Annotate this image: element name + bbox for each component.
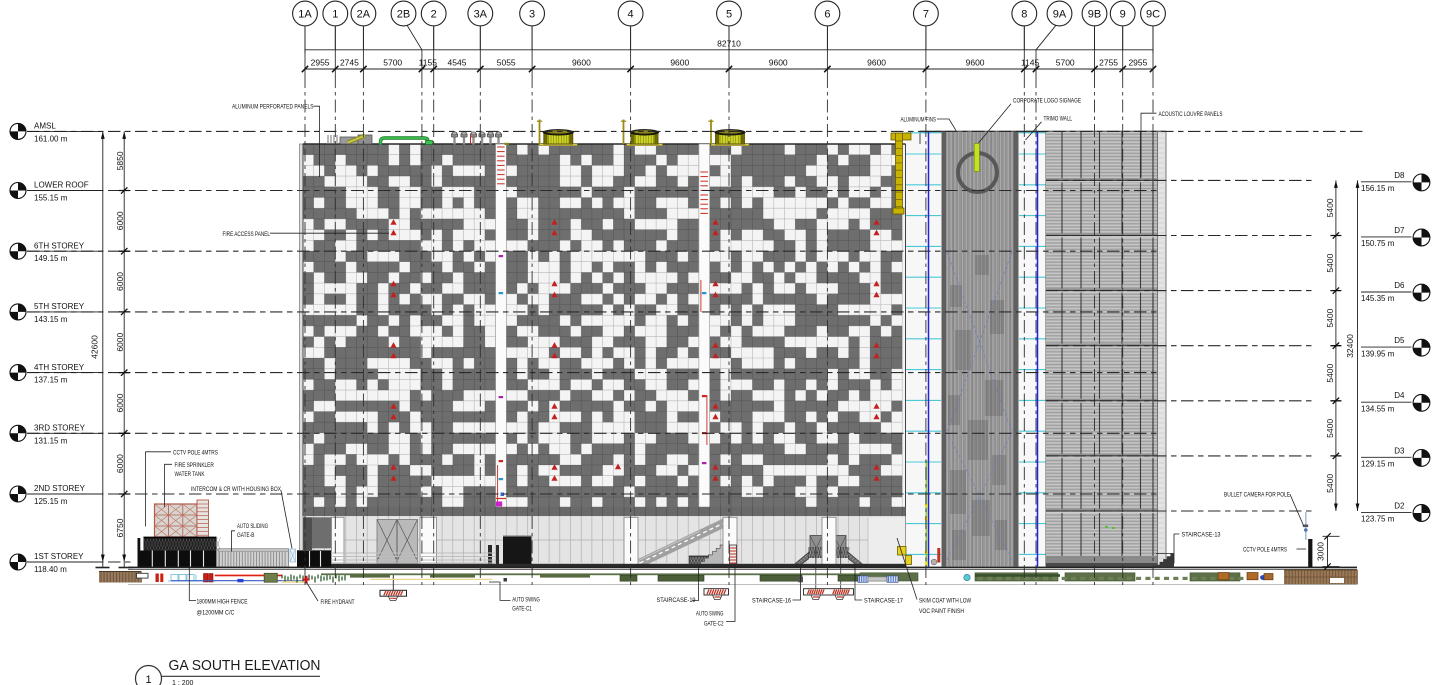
svg-text:AUTO SWING: AUTO SWING	[696, 611, 724, 618]
svg-text:155.15 m: 155.15 m	[34, 194, 68, 203]
svg-text:ALUMINUM FINS: ALUMINUM FINS	[901, 117, 937, 124]
svg-text:STAIRCASE-17: STAIRCASE-17	[864, 598, 903, 605]
svg-text:9600: 9600	[572, 58, 591, 68]
svg-text:TRIMO WALL: TRIMO WALL	[1044, 116, 1073, 123]
svg-text:D6: D6	[1394, 281, 1405, 290]
svg-text:5: 5	[726, 9, 732, 21]
svg-text:6000: 6000	[115, 393, 125, 412]
svg-text:145.35 m: 145.35 m	[1361, 294, 1395, 303]
svg-text:5055: 5055	[497, 58, 516, 68]
svg-text:2955: 2955	[1128, 58, 1147, 68]
svg-text:STAIRCASE-16: STAIRCASE-16	[752, 598, 791, 605]
svg-text:1: 1	[332, 9, 338, 21]
svg-text:D5: D5	[1394, 336, 1405, 345]
svg-text:9600: 9600	[867, 58, 886, 68]
svg-text:1155: 1155	[419, 58, 438, 68]
svg-text:9600: 9600	[769, 58, 788, 68]
svg-text:1800MM HIGH FENCE: 1800MM HIGH FENCE	[197, 599, 248, 606]
svg-text:ALUMINUM PERFORATED PANELS: ALUMINUM PERFORATED PANELS	[232, 104, 314, 111]
svg-text:125.15 m: 125.15 m	[34, 497, 68, 506]
svg-text:9B: 9B	[1088, 9, 1101, 21]
svg-text:WATER TANK: WATER TANK	[175, 471, 205, 478]
svg-text:5700: 5700	[1056, 58, 1075, 68]
svg-text:CCTV POLE 4MTRS: CCTV POLE 4MTRS	[173, 450, 218, 457]
svg-text:GATE-C2: GATE-C2	[704, 621, 724, 628]
svg-text:129.15 m: 129.15 m	[1361, 460, 1395, 469]
svg-text:118.40 m: 118.40 m	[34, 565, 67, 574]
svg-text:CORPORATE LOGO SIGNAGE: CORPORATE LOGO SIGNAGE	[1013, 98, 1081, 105]
svg-text:AUTO SLIDING: AUTO SLIDING	[237, 523, 268, 530]
svg-text:150.75 m: 150.75 m	[1361, 239, 1395, 248]
svg-text:3: 3	[529, 9, 535, 21]
svg-text:1ST STOREY: 1ST STOREY	[34, 552, 84, 561]
svg-text:CCTV POLE 4MTRS: CCTV POLE 4MTRS	[1243, 547, 1287, 554]
svg-text:SKIM COAT WITH LOW: SKIM COAT WITH LOW	[919, 598, 972, 605]
svg-text:1 : 200: 1 : 200	[172, 680, 194, 685]
svg-text:5400: 5400	[1325, 198, 1335, 217]
svg-text:161.00 m: 161.00 m	[34, 134, 68, 143]
svg-text:GATE-B: GATE-B	[237, 532, 255, 539]
svg-text:4: 4	[628, 9, 634, 21]
svg-text:GA SOUTH ELEVATION: GA SOUTH ELEVATION	[169, 658, 321, 674]
svg-text:9600: 9600	[966, 58, 985, 68]
svg-text:BULLET CAMERA FOR POLE: BULLET CAMERA FOR POLE	[1224, 492, 1290, 499]
svg-text:5850: 5850	[115, 151, 125, 170]
svg-text:139.95 m: 139.95 m	[1361, 349, 1395, 358]
svg-text:STAIRCASE-19: STAIRCASE-19	[657, 597, 696, 604]
svg-text:1: 1	[145, 674, 151, 685]
svg-text:D8: D8	[1394, 171, 1405, 180]
svg-text:32400: 32400	[1345, 334, 1355, 358]
svg-text:2955: 2955	[311, 58, 330, 68]
svg-text:131.15 m: 131.15 m	[34, 436, 68, 445]
svg-text:134.55 m: 134.55 m	[1361, 404, 1395, 413]
svg-text:8: 8	[1021, 9, 1027, 21]
svg-text:2745: 2745	[340, 58, 359, 68]
svg-text:3RD STOREY: 3RD STOREY	[34, 424, 86, 433]
svg-text:3000: 3000	[1316, 542, 1326, 561]
svg-text:6000: 6000	[115, 272, 125, 291]
svg-text:FIRE SPRINKLER: FIRE SPRINKLER	[175, 462, 214, 469]
svg-text:6000: 6000	[115, 454, 125, 473]
svg-text:2B: 2B	[397, 9, 410, 21]
svg-text:D7: D7	[1394, 226, 1405, 235]
svg-text:5400: 5400	[1325, 363, 1335, 382]
svg-text:5400: 5400	[1325, 308, 1335, 327]
svg-text:4TH STOREY: 4TH STOREY	[34, 363, 85, 372]
svg-text:6: 6	[824, 9, 830, 21]
svg-text:6000: 6000	[115, 332, 125, 351]
svg-text:D3: D3	[1394, 446, 1405, 455]
svg-text:ACOUSTIC LOUVRE PANELS: ACOUSTIC LOUVRE PANELS	[1159, 111, 1223, 118]
svg-text:1145: 1145	[1021, 58, 1040, 68]
svg-text:2A: 2A	[357, 9, 371, 21]
svg-text:2755: 2755	[1099, 58, 1118, 68]
svg-text:AUTO SWING: AUTO SWING	[512, 597, 540, 604]
svg-text:5TH STOREY: 5TH STOREY	[34, 302, 85, 311]
svg-text:LOWER ROOF: LOWER ROOF	[34, 181, 89, 190]
svg-text:42600: 42600	[90, 335, 100, 359]
svg-text:AMSL: AMSL	[34, 122, 56, 131]
svg-text:7: 7	[923, 9, 929, 21]
svg-text:9A: 9A	[1053, 9, 1067, 21]
svg-text:6750: 6750	[115, 518, 125, 537]
svg-text:6000: 6000	[115, 211, 125, 230]
svg-text:5700: 5700	[383, 58, 402, 68]
svg-text:STAIRCASE-13: STAIRCASE-13	[1182, 532, 1221, 539]
svg-text:4545: 4545	[448, 58, 467, 68]
svg-text:9: 9	[1120, 9, 1126, 21]
svg-text:5400: 5400	[1325, 474, 1335, 493]
svg-text:@1200MM C/C: @1200MM C/C	[197, 610, 235, 617]
svg-text:156.15 m: 156.15 m	[1361, 184, 1395, 193]
svg-text:123.75 m: 123.75 m	[1361, 515, 1395, 524]
svg-text:VOC PAINT FINISH: VOC PAINT FINISH	[919, 608, 964, 615]
svg-text:2ND STOREY: 2ND STOREY	[34, 484, 86, 493]
svg-text:82710: 82710	[717, 39, 741, 49]
svg-text:9C: 9C	[1146, 9, 1160, 21]
svg-text:143.15 m: 143.15 m	[34, 315, 68, 324]
svg-text:5400: 5400	[1325, 419, 1335, 438]
svg-text:D2: D2	[1394, 501, 1405, 510]
svg-text:5400: 5400	[1325, 253, 1335, 272]
svg-text:FIRE ACCESS PANEL: FIRE ACCESS PANEL	[223, 231, 271, 238]
svg-text:FIRE HYDRANT: FIRE HYDRANT	[321, 599, 355, 606]
svg-text:INTERCOM & CR WITH HOUSING BOX: INTERCOM & CR WITH HOUSING BOX	[191, 486, 281, 493]
svg-text:D4: D4	[1394, 391, 1405, 400]
svg-text:9600: 9600	[670, 58, 689, 68]
svg-text:1A: 1A	[298, 9, 312, 21]
svg-text:3A: 3A	[474, 9, 488, 21]
svg-text:6TH STOREY: 6TH STOREY	[34, 241, 85, 250]
svg-text:137.15 m: 137.15 m	[34, 376, 68, 385]
svg-text:GATE-C1: GATE-C1	[512, 606, 532, 613]
svg-text:149.15 m: 149.15 m	[34, 254, 68, 263]
svg-text:2: 2	[431, 9, 437, 21]
